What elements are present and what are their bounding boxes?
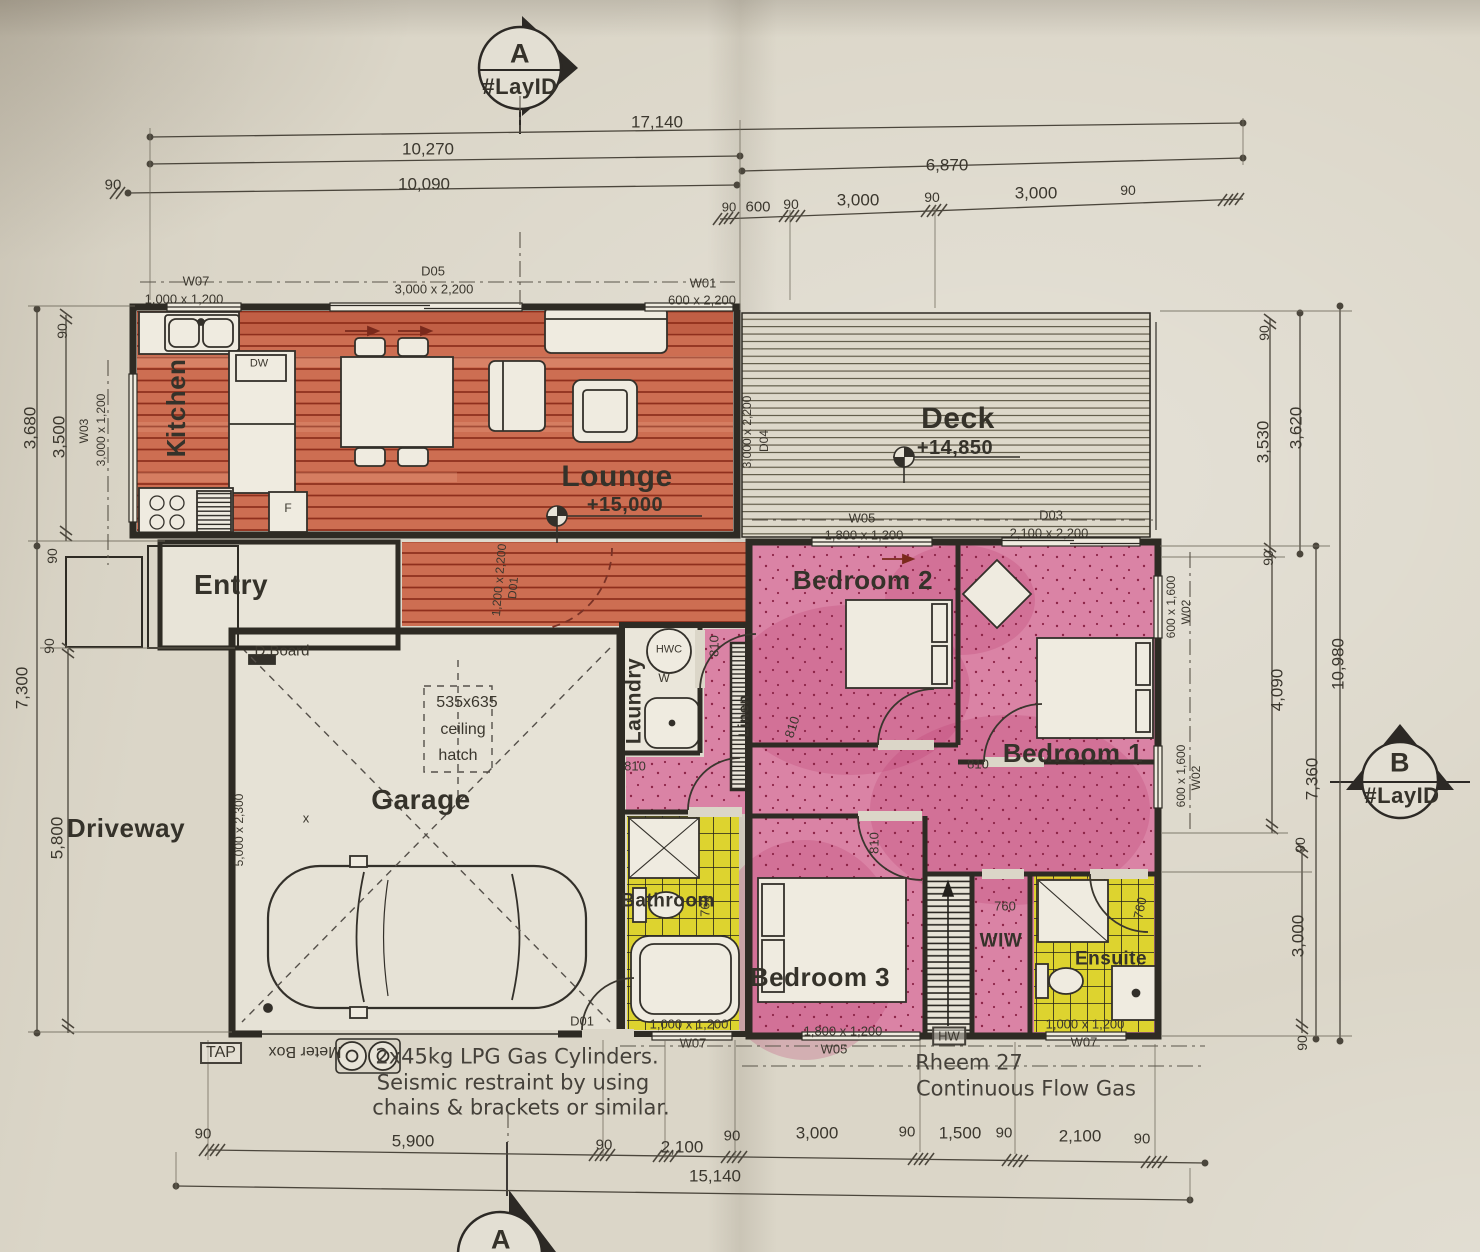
note-lpg-line1: 2x45kg LPG Gas Cylinders. <box>375 1047 658 1068</box>
door-width-ensuite: 760 <box>1131 896 1148 920</box>
window-label-w03: W03 <box>78 419 90 444</box>
door-size-d04: 3,000 x 2,200 <box>741 396 753 469</box>
fixture-label-meter-box: Meter Box <box>269 1043 342 1059</box>
dim-right-3530: 3,530 <box>1255 421 1272 464</box>
dim-left-90-top: 90 <box>55 323 69 339</box>
marker-b-layid: #LayID <box>1364 785 1439 807</box>
dim-left-90-low: 90 <box>42 638 56 654</box>
window-size-w03: 3,000 x 1,200 <box>95 394 107 467</box>
fixture-label-dw: DW <box>250 359 268 370</box>
level-label-lounge: +15,000 <box>587 495 663 515</box>
dim-right-4090: 4,090 <box>1269 669 1286 712</box>
door-width-bedroom2: 810 <box>782 715 801 740</box>
dim-right-90-low: 90 <box>1293 837 1307 853</box>
dim-bottom-90-a: 90 <box>195 1127 212 1142</box>
room-label-linen: Linen <box>737 695 752 738</box>
note-hatch-word2: hatch <box>438 748 477 764</box>
room-label-driveway: Driveway <box>67 815 185 841</box>
door-width-bathroom: 760 <box>699 895 712 917</box>
dim-left-3500: 3,500 <box>51 416 68 459</box>
dim-right-7360: 7,360 <box>1304 758 1321 801</box>
window-label-w02-lower: W02 <box>1190 766 1202 791</box>
window-label-w05-top: W05 <box>849 512 876 525</box>
dim-top-600: 600 <box>745 200 770 215</box>
note-rheem-line2: Continuous Flow Gas <box>916 1079 1136 1100</box>
room-label-garage: Garage <box>371 786 471 814</box>
dim-top-90-a: 90 <box>722 201 736 214</box>
dim-left-7300: 7,300 <box>14 667 31 710</box>
door-width-hall: 810 <box>624 760 646 773</box>
marker-a-top-layid: #LayID <box>482 76 557 98</box>
dim-bottom-90-f: 90 <box>1134 1132 1151 1147</box>
dim-bottom-90-d: 90 <box>899 1125 916 1140</box>
note-lpg-line3: chains & brackets or similar. <box>372 1098 669 1119</box>
level-label-deck: +14,850 <box>917 438 993 458</box>
fixture-label-hwc: HWC <box>656 645 682 656</box>
note-hatch-size: 535x635 <box>436 695 497 711</box>
room-label-bedroom3: Bedroom 3 <box>750 964 890 990</box>
dim-left-90-mid: 90 <box>45 548 59 564</box>
window-size-w07-top: 1,000 x 1,200 <box>145 293 224 306</box>
marker-b-letter: B <box>1390 750 1410 777</box>
marker-a-top-letter: A <box>510 41 530 68</box>
door-label-d01-entry: D01 <box>506 577 520 600</box>
dim-right-90-bot: 90 <box>1295 1035 1309 1051</box>
door-label-d04: D04 <box>758 430 770 452</box>
room-label-wiw: WIW <box>980 932 1023 951</box>
window-label-w05-bottom: W05 <box>821 1043 848 1056</box>
room-label-bedroom2: Bedroom 2 <box>793 567 933 593</box>
window-label-w07-top: W07 <box>183 275 210 288</box>
fixture-label-washer: W <box>658 672 669 684</box>
dim-bottom-90-e: 90 <box>996 1126 1013 1141</box>
dim-top-90-left: 90 <box>105 178 122 193</box>
floor-plan-sheet: KitchenLoungeDeckEntryGarageDrivewayLaun… <box>0 0 1480 1252</box>
dim-bottom-1500: 1,500 <box>939 1125 982 1142</box>
room-label-entry: Entry <box>194 571 268 599</box>
room-label-bedroom1: Bedroom 1 <box>1003 740 1143 766</box>
window-size-w05-top: 1,800 x 1,200 <box>825 529 904 542</box>
dim-top-90-b: 90 <box>783 197 799 211</box>
door-size-d01-entry: 1,200 x 2,200 <box>490 543 508 617</box>
mark-x-garage: x <box>303 812 310 825</box>
door-width-laundry: 810 <box>708 635 721 657</box>
room-label-laundry: Laundry <box>624 658 645 744</box>
door-size-garage: 5,000 x 2,300 <box>233 794 245 867</box>
door-label-d01-garage: D01 <box>570 1015 594 1028</box>
dim-bottom-15140: 15,140 <box>689 1168 741 1185</box>
door-size-d05: 3,000 x 2,200 <box>395 283 474 296</box>
dim-top-6870: 6,870 <box>926 157 969 174</box>
note-lpg-line2: Seismic restraint by using <box>377 1073 650 1094</box>
fixture-label-dboard: D.Board <box>254 644 309 659</box>
door-label-d05: D05 <box>421 265 445 278</box>
dim-bottom-5900: 5,900 <box>392 1133 435 1150</box>
dim-top-3000-b: 3,000 <box>1015 185 1058 202</box>
room-label-ensuite: Ensuite <box>1075 950 1147 969</box>
dim-top-10270: 10,270 <box>402 141 454 158</box>
dim-top-90-c: 90 <box>924 190 940 204</box>
dim-right-3000: 3,000 <box>1290 915 1307 958</box>
window-size-w02-upper: 600 x 1,600 <box>1165 576 1177 639</box>
door-label-d03: D03 <box>1039 509 1063 522</box>
dim-top-90-d: 90 <box>1120 183 1136 197</box>
fixture-label-tap: TAP <box>200 1042 242 1064</box>
dim-right-90-top: 90 <box>1257 325 1271 341</box>
window-label-w07-ensuite: W07 <box>1071 1036 1098 1049</box>
dim-right-10980: 10,980 <box>1330 638 1347 690</box>
window-size-w07-bath: 1,000 x 1,200 <box>650 1018 729 1031</box>
door-width-bedroom3: 810 <box>868 832 881 854</box>
dim-bottom-90-c: 90 <box>724 1129 741 1144</box>
window-size-w01: 600 x 2,200 <box>668 294 736 307</box>
window-size-w02-lower: 600 x 1,600 <box>1175 745 1187 808</box>
door-width-wiw: 760 <box>994 900 1016 913</box>
window-label-w02-upper: W02 <box>1180 600 1192 625</box>
dim-bottom-2100-b: 2,100 <box>1059 1128 1102 1145</box>
dim-bottom-2100-a: 2,100 <box>661 1139 704 1156</box>
dim-right-3620: 3,620 <box>1288 407 1305 450</box>
dim-bottom-90-b: 90 <box>596 1138 613 1153</box>
room-label-lounge: Lounge <box>561 462 672 492</box>
window-size-w07-ensuite: 1,000 x 1,200 <box>1046 1018 1125 1031</box>
room-label-deck: Deck <box>921 404 995 434</box>
marker-a-bottom-letter: A <box>491 1227 511 1252</box>
dim-top-3000-a: 3,000 <box>837 192 880 209</box>
door-width-bedroom1: 810 <box>967 758 989 771</box>
note-hatch-word1: ceiling <box>440 722 485 738</box>
note-rheem-line1: Rheem 27 <box>915 1053 1023 1074</box>
window-label-w07-bath: W07 <box>680 1037 707 1050</box>
dim-left-5800: 5,800 <box>49 817 66 860</box>
room-label-kitchen: Kitchen <box>163 359 189 458</box>
dim-top-17140: 17,140 <box>631 114 683 131</box>
fixture-label-fridge: F <box>284 502 291 514</box>
door-size-d03: 2,100 x 2,200 <box>1010 527 1089 540</box>
dim-bottom-3000: 3,000 <box>796 1125 839 1142</box>
dim-right-90-mid: 90 <box>1261 550 1275 566</box>
fixture-label-hw: HW <box>932 1027 966 1046</box>
labels-layer: KitchenLoungeDeckEntryGarageDrivewayLaun… <box>0 0 1480 1252</box>
window-label-w01: W01 <box>690 277 717 290</box>
window-size-w05-bottom: 1,800 x 1,200 <box>804 1025 883 1038</box>
dim-top-10090: 10,090 <box>398 176 450 193</box>
dim-left-3680: 3,680 <box>22 407 39 450</box>
